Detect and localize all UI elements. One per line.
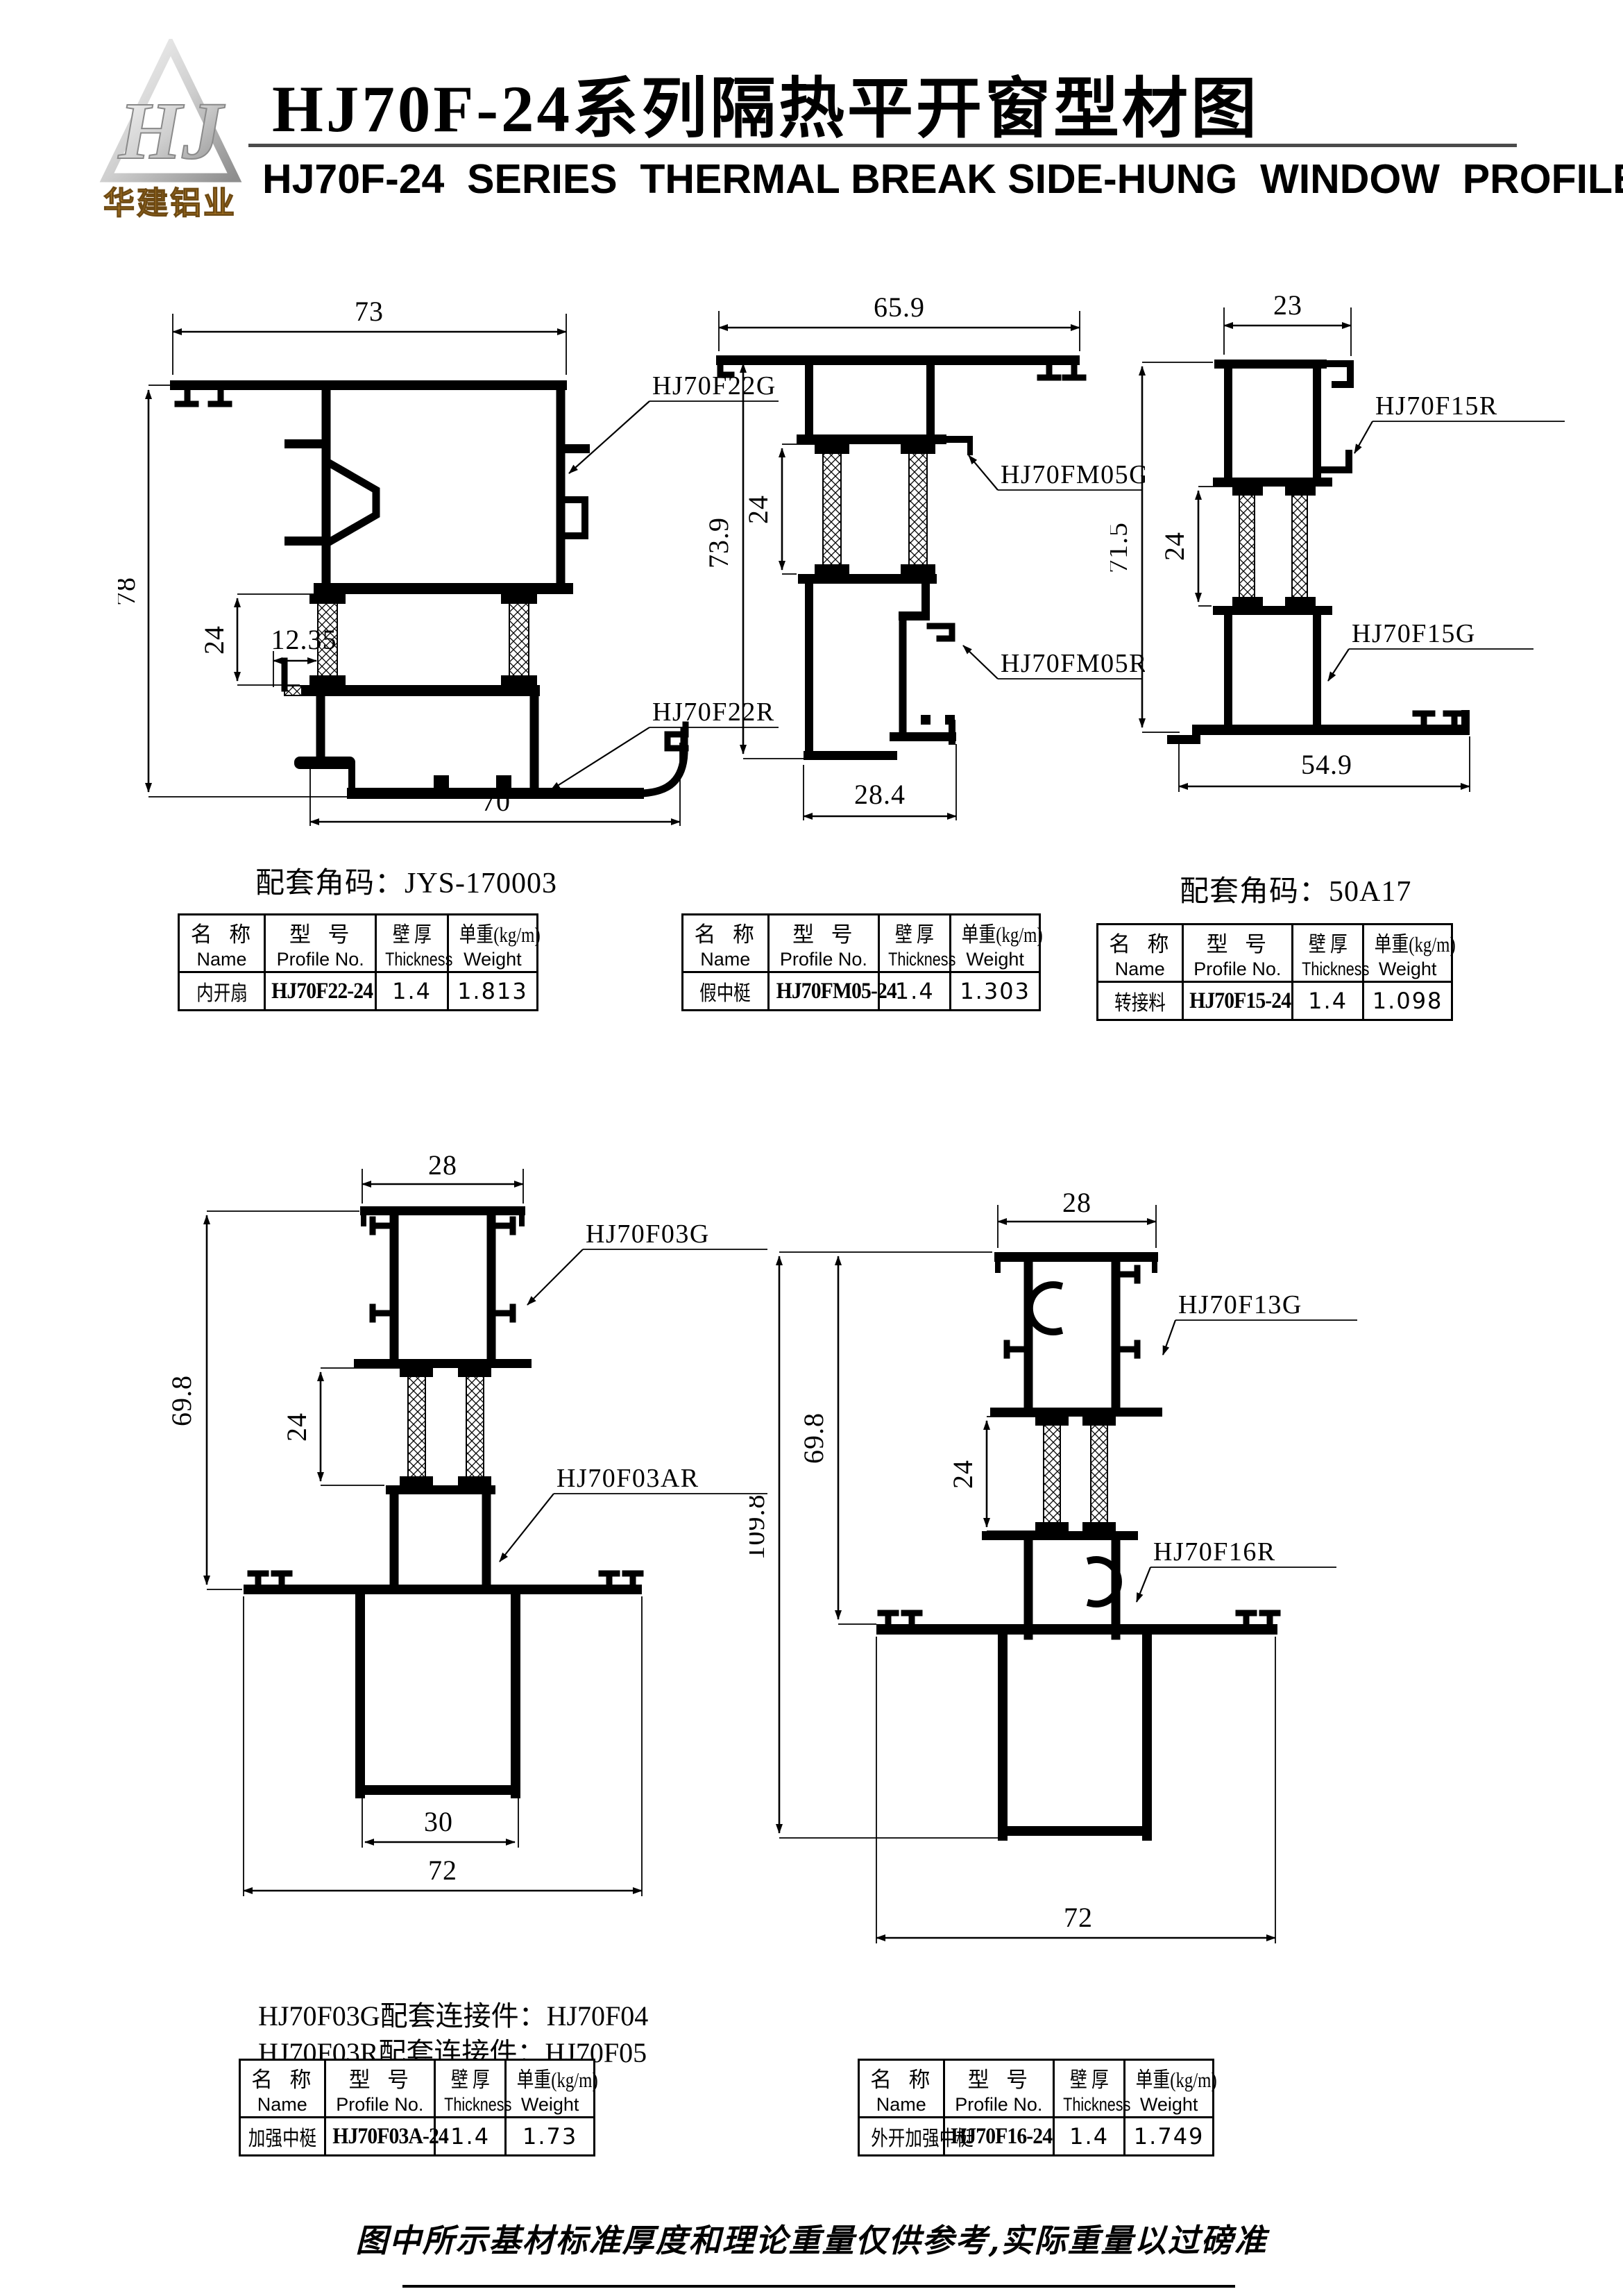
cell-model: HJ70F15-24 [1182,982,1292,1020]
col-weight: 单重(kg/m)Weight [1125,2060,1214,2118]
dim-top: 28 [428,1149,457,1181]
cell-weight: 1.303 [951,972,1040,1011]
table-row: 外开加强中梃 HJ70F16-24 1.4 1.749 [859,2118,1214,2156]
cell-thickness: 1.4 [1293,982,1363,1020]
col-weight: 单重(kg/m)Weight [506,2060,595,2118]
profile-drawing-hj70f22: 73 78 24 12.35 70 HJ70F22G HJ70F22R [118,271,784,847]
dim-bottom: 72 [1064,1902,1093,1933]
dim-bottom: 70 [482,786,511,817]
col-name: 名 称Name [179,915,265,972]
profile-label: HJ70F03AR [556,1464,699,1493]
profile-geometry [244,1206,642,1795]
dim-bottom: 54.9 [1301,749,1352,780]
dim-left: 69.8 [166,1375,197,1426]
dim-bottom: 28.4 [854,779,906,810]
dim-left: 78 [118,577,141,606]
profile-drawing-hj70f16: 28 24 69.8 109.8 72 HJ70F13G HJ70F16R [749,1180,1360,1985]
col-model: 型 号Profile No. [944,2060,1053,2118]
profile-callouts: HJ70F15R HJ70F15G [1328,391,1565,681]
spec-table-hj70fm05: 名 称Name 型 号Profile No. 壁 厚Thickness 单重(k… [681,913,1041,1011]
col-model: 型 号Profile No. [768,915,879,972]
dim-left: 69.8 [798,1412,829,1464]
cell-model: HJ70F03A-24 [325,2118,434,2156]
cell-thickness: 1.4 [376,972,448,1011]
cell-weight: 1.813 [448,972,537,1011]
col-thickness: 壁 厚Thickness [376,915,448,972]
dim-top: 65.9 [874,292,925,323]
col-model: 型 号Profile No. [265,915,376,972]
col-weight: 单重(kg/m)Weight [1363,925,1452,982]
cell-name: 外开加强中梃 [859,2118,944,2156]
cell-weight: 1.749 [1125,2118,1214,2156]
profile-geometry [170,380,686,799]
cell-name: 转接料 [1098,982,1183,1020]
dim-top: 28 [1062,1187,1091,1218]
table-row: 加强中梃 HJ70F03A-24 1.4 1.73 [240,2118,595,2156]
profile-label: HJ70F16R [1153,1537,1276,1567]
dim-top: 23 [1273,289,1302,321]
dim-inner: 12.35 [271,624,337,655]
footer-disclaimer: 图中所示基材标准厚度和理论重量仅供参考,实际重量以过磅准 [0,2215,1623,2261]
dimensions: 73 78 24 12.35 70 [118,296,680,826]
dim-outer: 109.8 [749,1494,770,1560]
dim-bottom: 72 [428,1855,457,1886]
profile-label: HJ70F15G [1352,619,1476,648]
table-header-row: 名 称Name 型 号Profile No. 壁 厚Thickness 单重(k… [1098,925,1452,982]
cell-model: HJ70F22-24 [265,972,376,1011]
table-row: 内开扇 HJ70F22-24 1.4 1.813 [179,972,538,1011]
dim-top: 73 [355,296,384,327]
table-header-row: 名 称Name 型 号Profile No. 壁 厚Thickness 单重(k… [683,915,1040,972]
corner-code-caption-3: 配套角码：50A17 [1180,868,1411,910]
col-thickness: 壁 厚Thickness [1293,925,1363,982]
col-name: 名 称Name [240,2060,325,2118]
profile-drawing-hj70fm05: 65.9 24 73.9 28.4 HJ70FM05G HJ70FM05R [694,285,1145,847]
col-thickness: 壁 厚Thickness [435,2060,506,2118]
dim-left: 73.9 [703,517,734,568]
table-header-row: 名 称Name 型 号Profile No. 壁 厚Thickness 单重(k… [179,915,538,972]
corner-code-caption-1: 配套角码：JYS-170003 [255,859,557,902]
col-name: 名 称Name [1098,925,1183,982]
profile-label: HJ70F03G [586,1219,710,1249]
cell-thickness: 1.4 [1054,2118,1125,2156]
col-weight: 单重(kg/m)Weight [951,915,1040,972]
col-thickness: 壁 厚Thickness [1054,2060,1125,2118]
cell-name: 加强中梃 [240,2118,325,2156]
col-name: 名 称Name [683,915,769,972]
profile-label: HJ70F15R [1375,391,1498,421]
cell-weight: 1.73 [506,2118,595,2156]
profile-drawing-hj70f03a: 28 24 69.8 30 72 HJ70F03G HJ70F03AR [160,1145,770,1930]
spec-table-hj70f16: 名 称Name 型 号Profile No. 壁 厚Thickness 单重(k… [858,2059,1214,2156]
profile-geometry [716,355,1083,760]
col-thickness: 壁 厚Thickness [879,915,951,972]
profile-drawing-hj70f15: 23 24 71.5 54.9 HJ70F15R HJ70F15G [1110,288,1568,843]
cell-name: 假中梃 [683,972,769,1011]
profile-label: HJ70F13G [1178,1290,1302,1319]
dim-mid: 24 [1159,532,1190,561]
spec-table-hj70f15: 名 称Name 型 号Profile No. 壁 厚Thickness 单重(k… [1096,923,1453,1021]
table-header-row: 名 称Name 型 号Profile No. 壁 厚Thickness 单重(k… [240,2060,595,2118]
table-header-row: 名 称Name 型 号Profile No. 壁 厚Thickness 单重(k… [859,2060,1214,2118]
dim-mid: 24 [281,1412,312,1442]
cell-weight: 1.098 [1363,982,1452,1020]
col-name: 名 称Name [859,2060,944,2118]
drawing-sheet: HJ 华建铝业 HJ70F-24系列隔热平开窗型材图 HJ70F-24 SERI… [0,0,1623,2296]
table-row: 假中梃 HJ70FM05-24 1.4 1.303 [683,972,1040,1011]
connector-note-line: HJ70F03G配套连接件：HJ70F04 [258,1998,648,2034]
dim-inner: 30 [424,1806,453,1837]
logo-company-name: 华建铝业 [103,185,237,221]
col-model: 型 号Profile No. [325,2060,434,2118]
dim-mid: 24 [198,625,230,655]
spec-table-hj70f22: 名 称Name 型 号Profile No. 壁 厚Thickness 单重(k… [178,913,538,1011]
cell-model: HJ70FM05-24 [768,972,879,1011]
logo-monogram: HJ [118,85,226,176]
col-model: 型 号Profile No. [1182,925,1292,982]
cell-name: 内开扇 [179,972,265,1011]
dim-mid: 24 [742,495,774,524]
page-title: HJ70F-24系列隔热平开窗型材图 [272,56,1259,151]
dim-left: 71.5 [1110,522,1133,573]
title-divider [248,144,1517,147]
col-weight: 单重(kg/m)Weight [448,915,537,972]
page-subtitle: HJ70F-24 SERIES THERMAL BREAK SIDE-HUNG … [262,155,1518,203]
profile-callouts: HJ70F03G HJ70F03AR [500,1219,767,1562]
company-logo: HJ 华建铝业 [96,39,245,226]
table-row: 转接料 HJ70F15-24 1.4 1.098 [1098,982,1452,1020]
spec-table-hj70f03a: 名 称Name 型 号Profile No. 壁 厚Thickness 单重(k… [239,2059,595,2156]
profile-callouts: HJ70F13G HJ70F16R [1137,1290,1357,1602]
dim-mid: 24 [947,1460,978,1489]
sheet-bottom-border [402,2285,1235,2288]
